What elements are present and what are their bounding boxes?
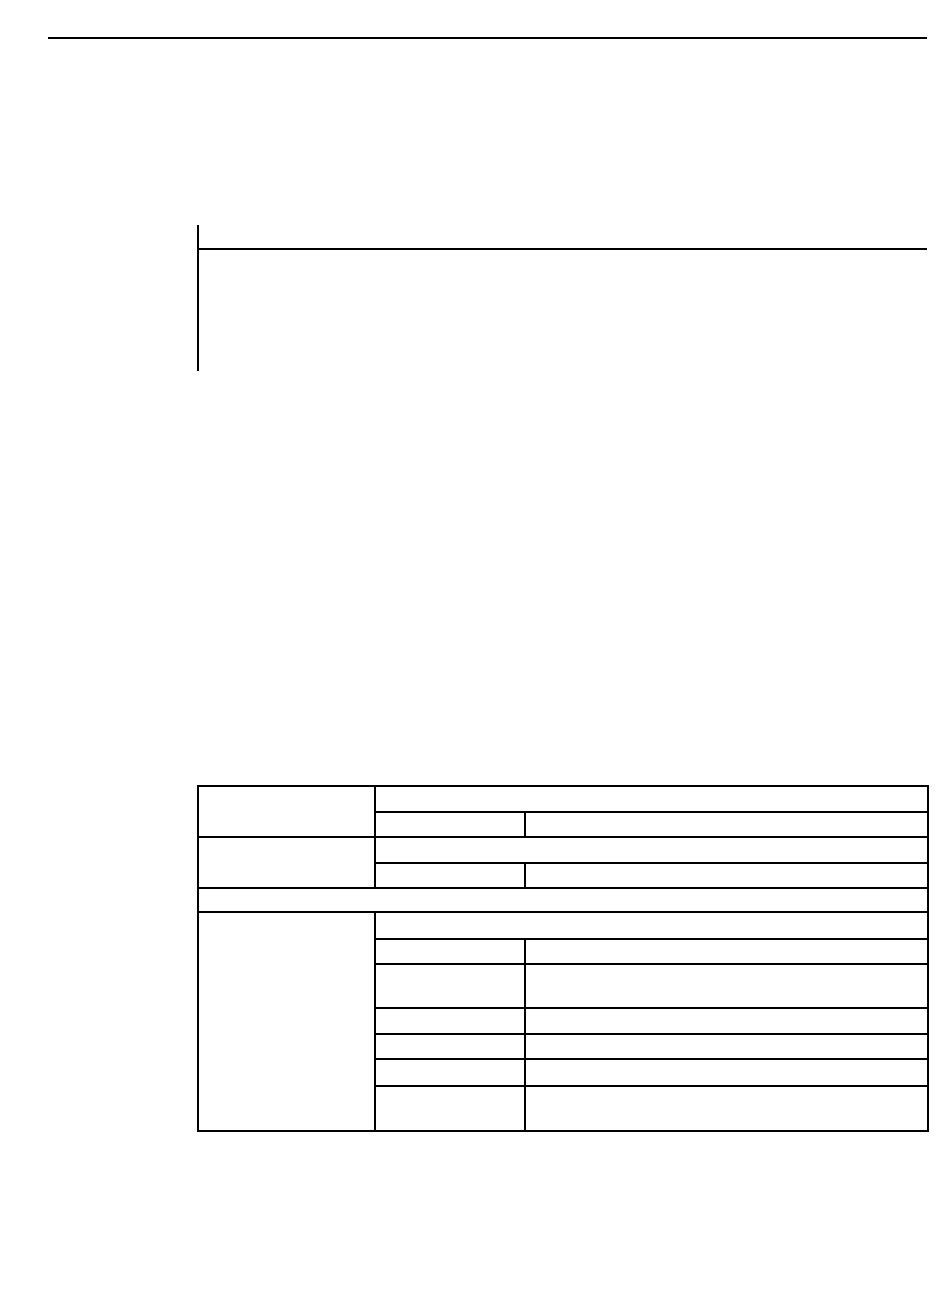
table-cell-group3-sub4-mid: [375, 1034, 525, 1059]
table-cell-group3-sub5-right: [525, 1059, 928, 1086]
table-cell-group3-top: [375, 912, 928, 939]
table-cell-group3-sub3-mid: [375, 1008, 525, 1034]
table-cell-group3-sub1-right: [525, 939, 928, 964]
table-cell-group2-right: [525, 863, 928, 888]
table-cell-group1-top: [375, 786, 928, 812]
table-cell-group2-mid: [375, 863, 525, 888]
table-cell-group1-label: [198, 786, 375, 837]
note-left-bar: [197, 225, 199, 371]
document-page: [0, 0, 950, 1301]
header-rule: [48, 37, 927, 39]
table-cell-group1-mid: [375, 812, 525, 837]
table-row: [198, 888, 928, 912]
table-row: [198, 837, 928, 863]
table-cell-group3-sub2-mid: [375, 964, 525, 1008]
table-cell-group2-top: [375, 837, 928, 863]
table-row: [198, 912, 928, 939]
table-cell-group3-sub6-right: [525, 1086, 928, 1131]
table-cell-group3-sub5-mid: [375, 1059, 525, 1086]
table-cell-group3-sub1-mid: [375, 939, 525, 964]
spec-table: [197, 785, 929, 1132]
table-cell-group3-sub2-right: [525, 964, 928, 1008]
table-cell-group2-label: [198, 837, 375, 888]
table-cell-group3-sub3-right: [525, 1008, 928, 1034]
table-cell-group3-sub4-right: [525, 1034, 928, 1059]
table-cell-group3-label: [198, 912, 375, 1131]
note-body-text: [210, 258, 910, 363]
note-top-rule: [197, 248, 927, 250]
table-cell-group3-sub6-mid: [375, 1086, 525, 1131]
table-cell-group1-right: [525, 812, 928, 837]
table-cell-fullwidth: [198, 888, 928, 912]
table-row: [198, 786, 928, 812]
